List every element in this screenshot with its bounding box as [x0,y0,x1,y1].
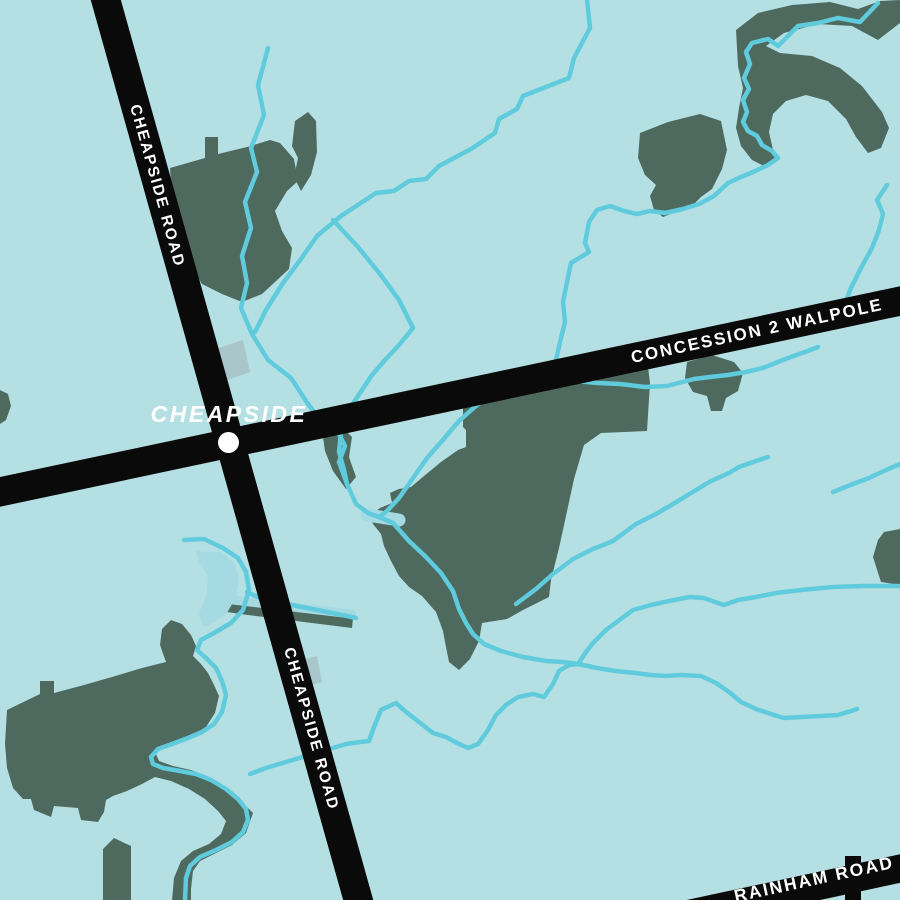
place-marker-dot [218,432,239,453]
map-print: CHEAPSIDE ROAD CHEAPSIDE ROAD CONCESSION… [0,0,900,900]
place-label-cheapside: CHEAPSIDE [151,401,308,427]
forest-strip-south [103,838,131,900]
map-canvas: CHEAPSIDE ROAD CHEAPSIDE ROAD CONCESSION… [0,0,900,900]
